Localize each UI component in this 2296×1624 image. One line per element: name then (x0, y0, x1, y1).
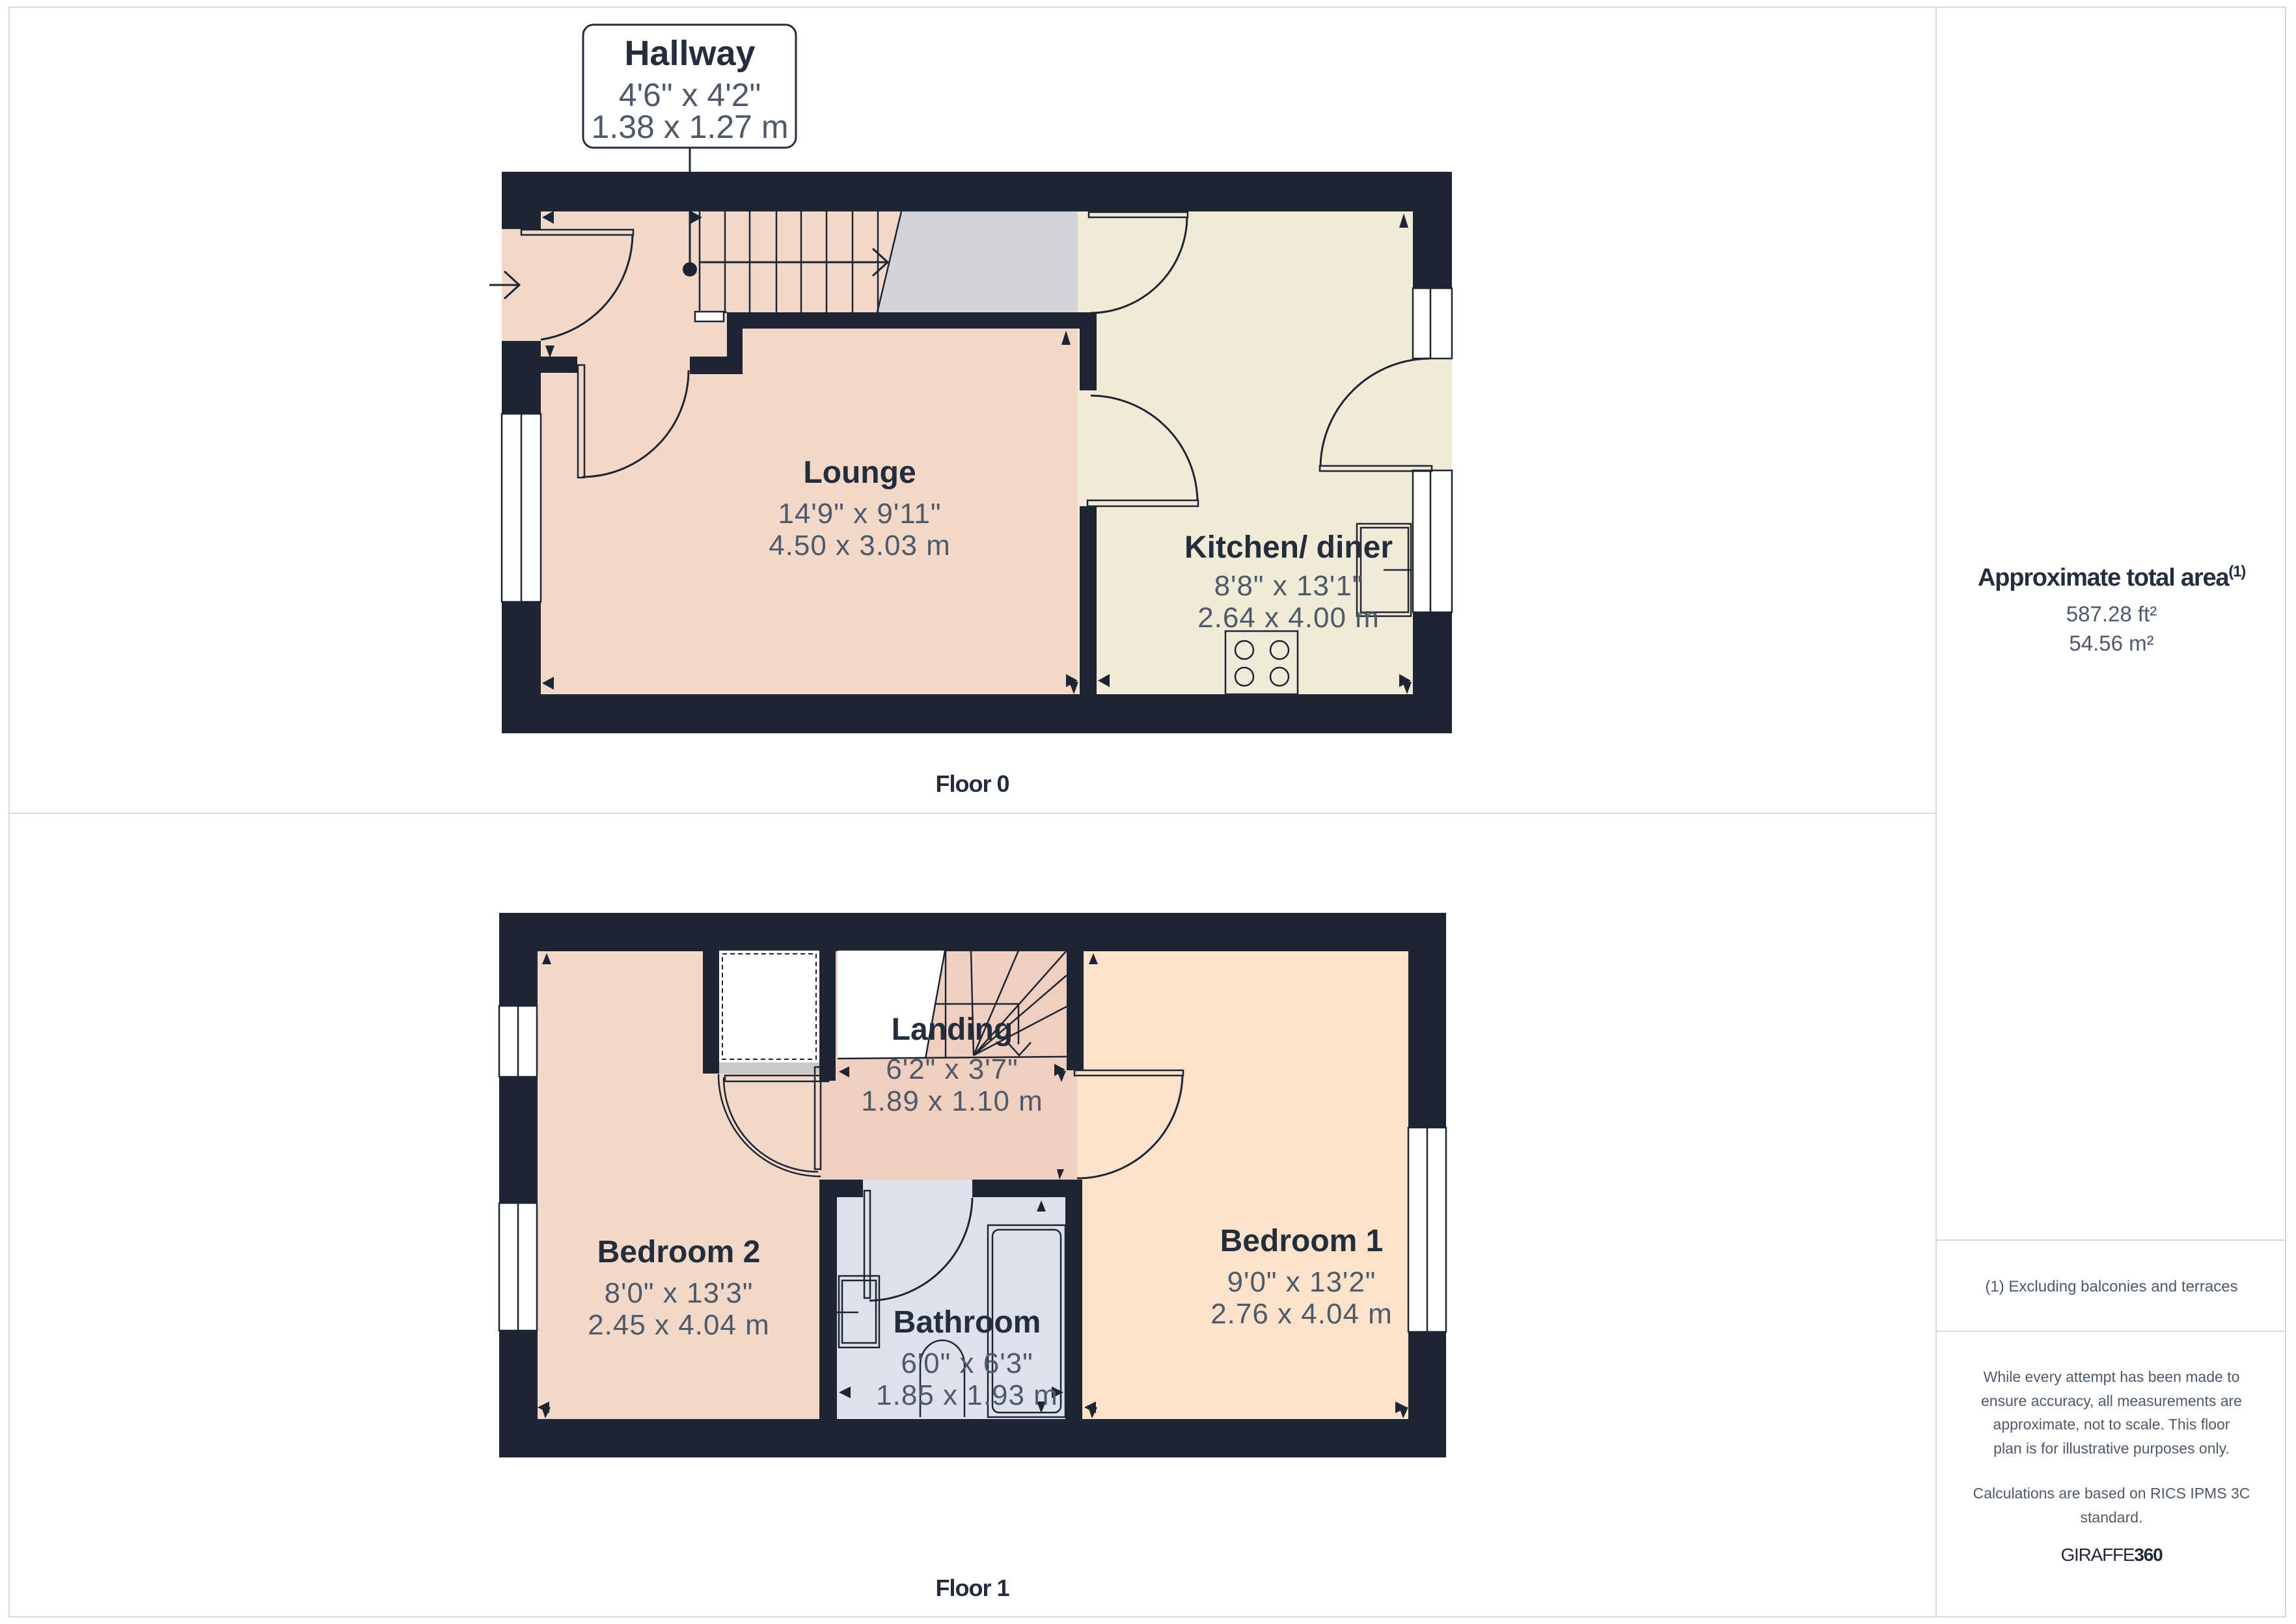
svg-text:2.64 x 4.00 m: 2.64 x 4.00 m (1197, 602, 1380, 634)
svg-text:Landing: Landing (892, 1012, 1013, 1047)
svg-text:Bedroom 2: Bedroom 2 (597, 1235, 761, 1269)
svg-text:4'6" x 4'2": 4'6" x 4'2" (619, 77, 761, 113)
svg-text:2.76 x 4.04 m: 2.76 x 4.04 m (1210, 1298, 1393, 1330)
svg-text:6'0" x 6'3": 6'0" x 6'3" (901, 1347, 1033, 1379)
svg-text:Bedroom 1: Bedroom 1 (1220, 1224, 1384, 1258)
svg-text:9'0" x 13'2": 9'0" x 13'2" (1227, 1266, 1376, 1298)
svg-text:Lounge: Lounge (803, 455, 916, 490)
svg-text:Bathroom: Bathroom (894, 1305, 1041, 1340)
svg-text:4.50 x 3.03 m: 4.50 x 3.03 m (769, 530, 951, 562)
svg-text:14'9" x 9'11": 14'9" x 9'11" (778, 498, 941, 530)
svg-text:Hallway: Hallway (624, 34, 755, 73)
svg-text:Floor 0: Floor 0 (935, 770, 1009, 797)
svg-text:1.89 x 1.10 m: 1.89 x 1.10 m (861, 1085, 1043, 1117)
svg-text:Floor 1: Floor 1 (935, 1575, 1009, 1601)
svg-text:8'0" x 13'3": 8'0" x 13'3" (605, 1277, 754, 1309)
svg-text:1.85 x 1.93 m: 1.85 x 1.93 m (876, 1379, 1058, 1411)
svg-text:8'8" x 13'1": 8'8" x 13'1" (1214, 570, 1363, 602)
svg-text:2.45 x 4.04 m: 2.45 x 4.04 m (588, 1309, 770, 1341)
svg-text:6'2" x 3'7": 6'2" x 3'7" (886, 1053, 1018, 1085)
svg-text:1.38 x 1.27 m: 1.38 x 1.27 m (592, 109, 789, 145)
svg-text:Kitchen/ diner: Kitchen/ diner (1184, 530, 1393, 565)
